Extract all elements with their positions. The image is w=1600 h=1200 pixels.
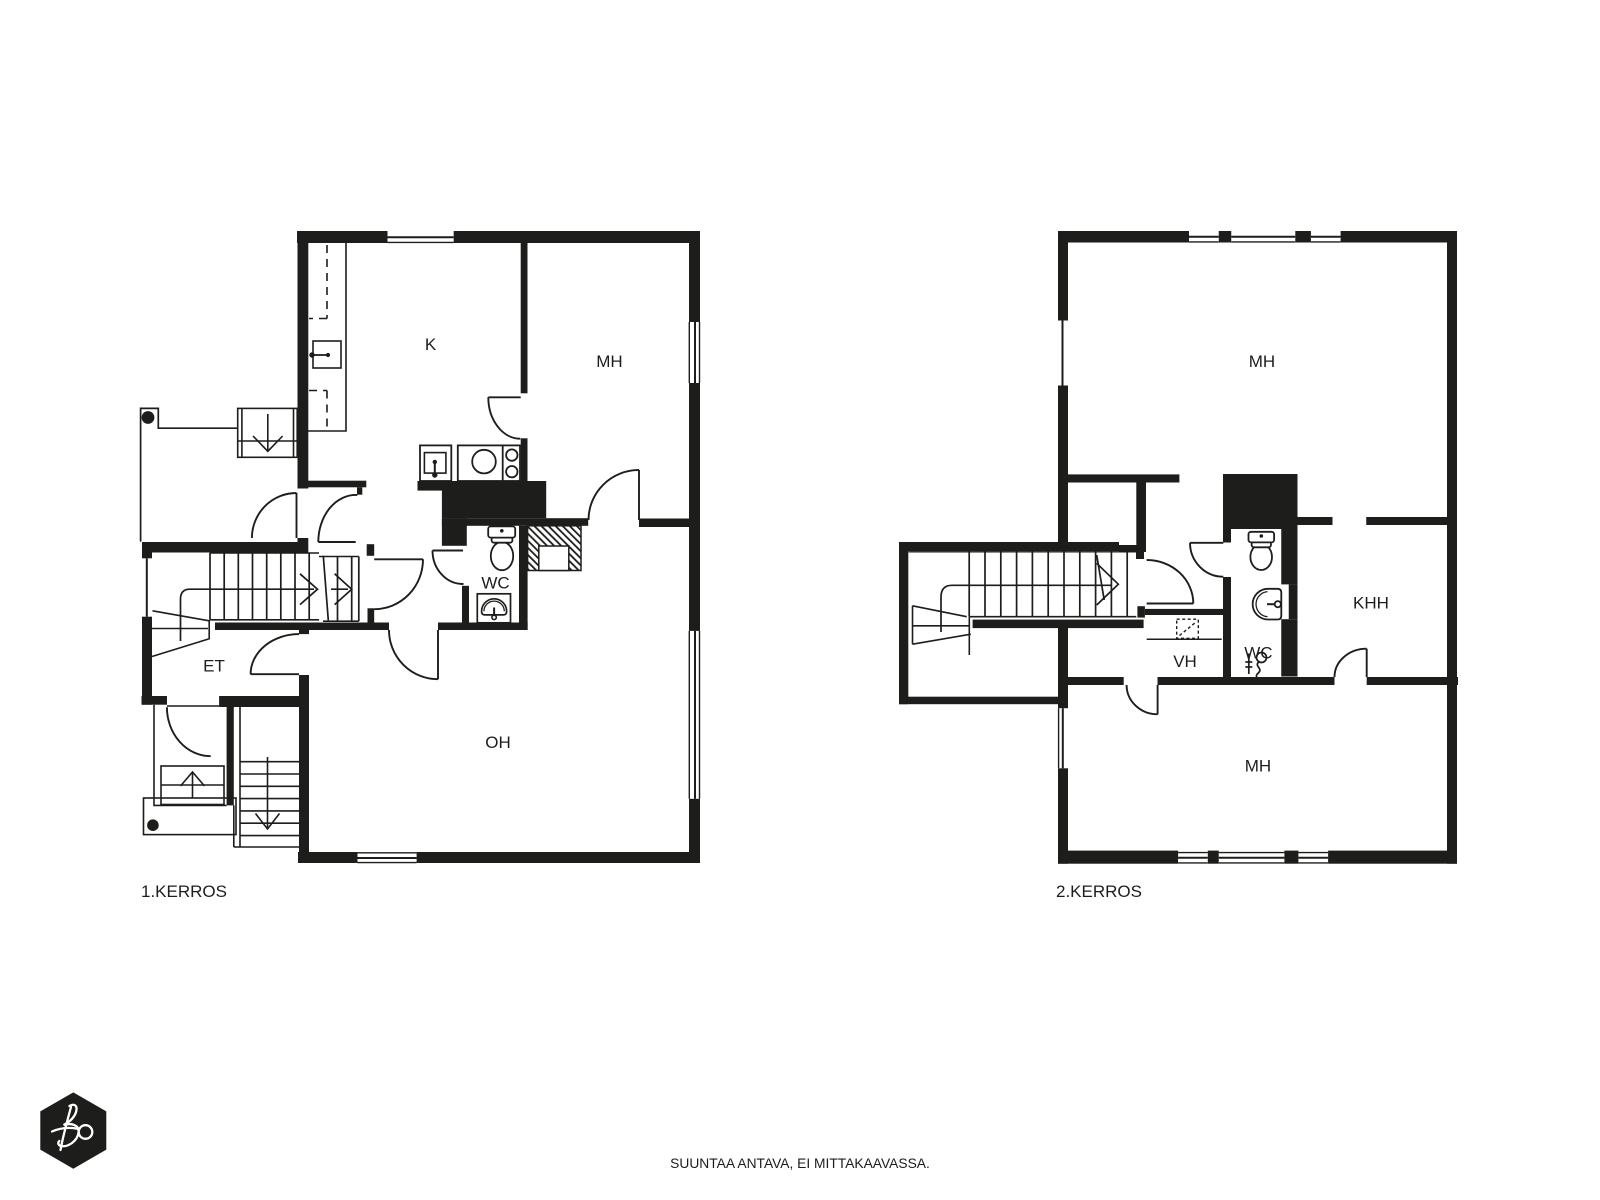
svg-text:WC: WC [1244,643,1272,662]
svg-text:ET: ET [203,657,225,676]
svg-text:OH: OH [485,733,511,752]
svg-text:KHH: KHH [1353,594,1389,613]
svg-text:MH: MH [1249,352,1275,371]
svg-text:VH: VH [1173,652,1197,671]
svg-text:K: K [425,335,437,354]
svg-text:WC: WC [481,574,509,593]
svg-text:SUUNTAA ANTAVA, EI MITTAKAAVAS: SUUNTAA ANTAVA, EI MITTAKAAVASSA. [670,1156,930,1171]
svg-text:MH: MH [596,352,622,371]
svg-text:MH: MH [1245,757,1271,776]
svg-text:2.KERROS: 2.KERROS [1056,882,1142,901]
svg-text:1.KERROS: 1.KERROS [141,882,227,901]
